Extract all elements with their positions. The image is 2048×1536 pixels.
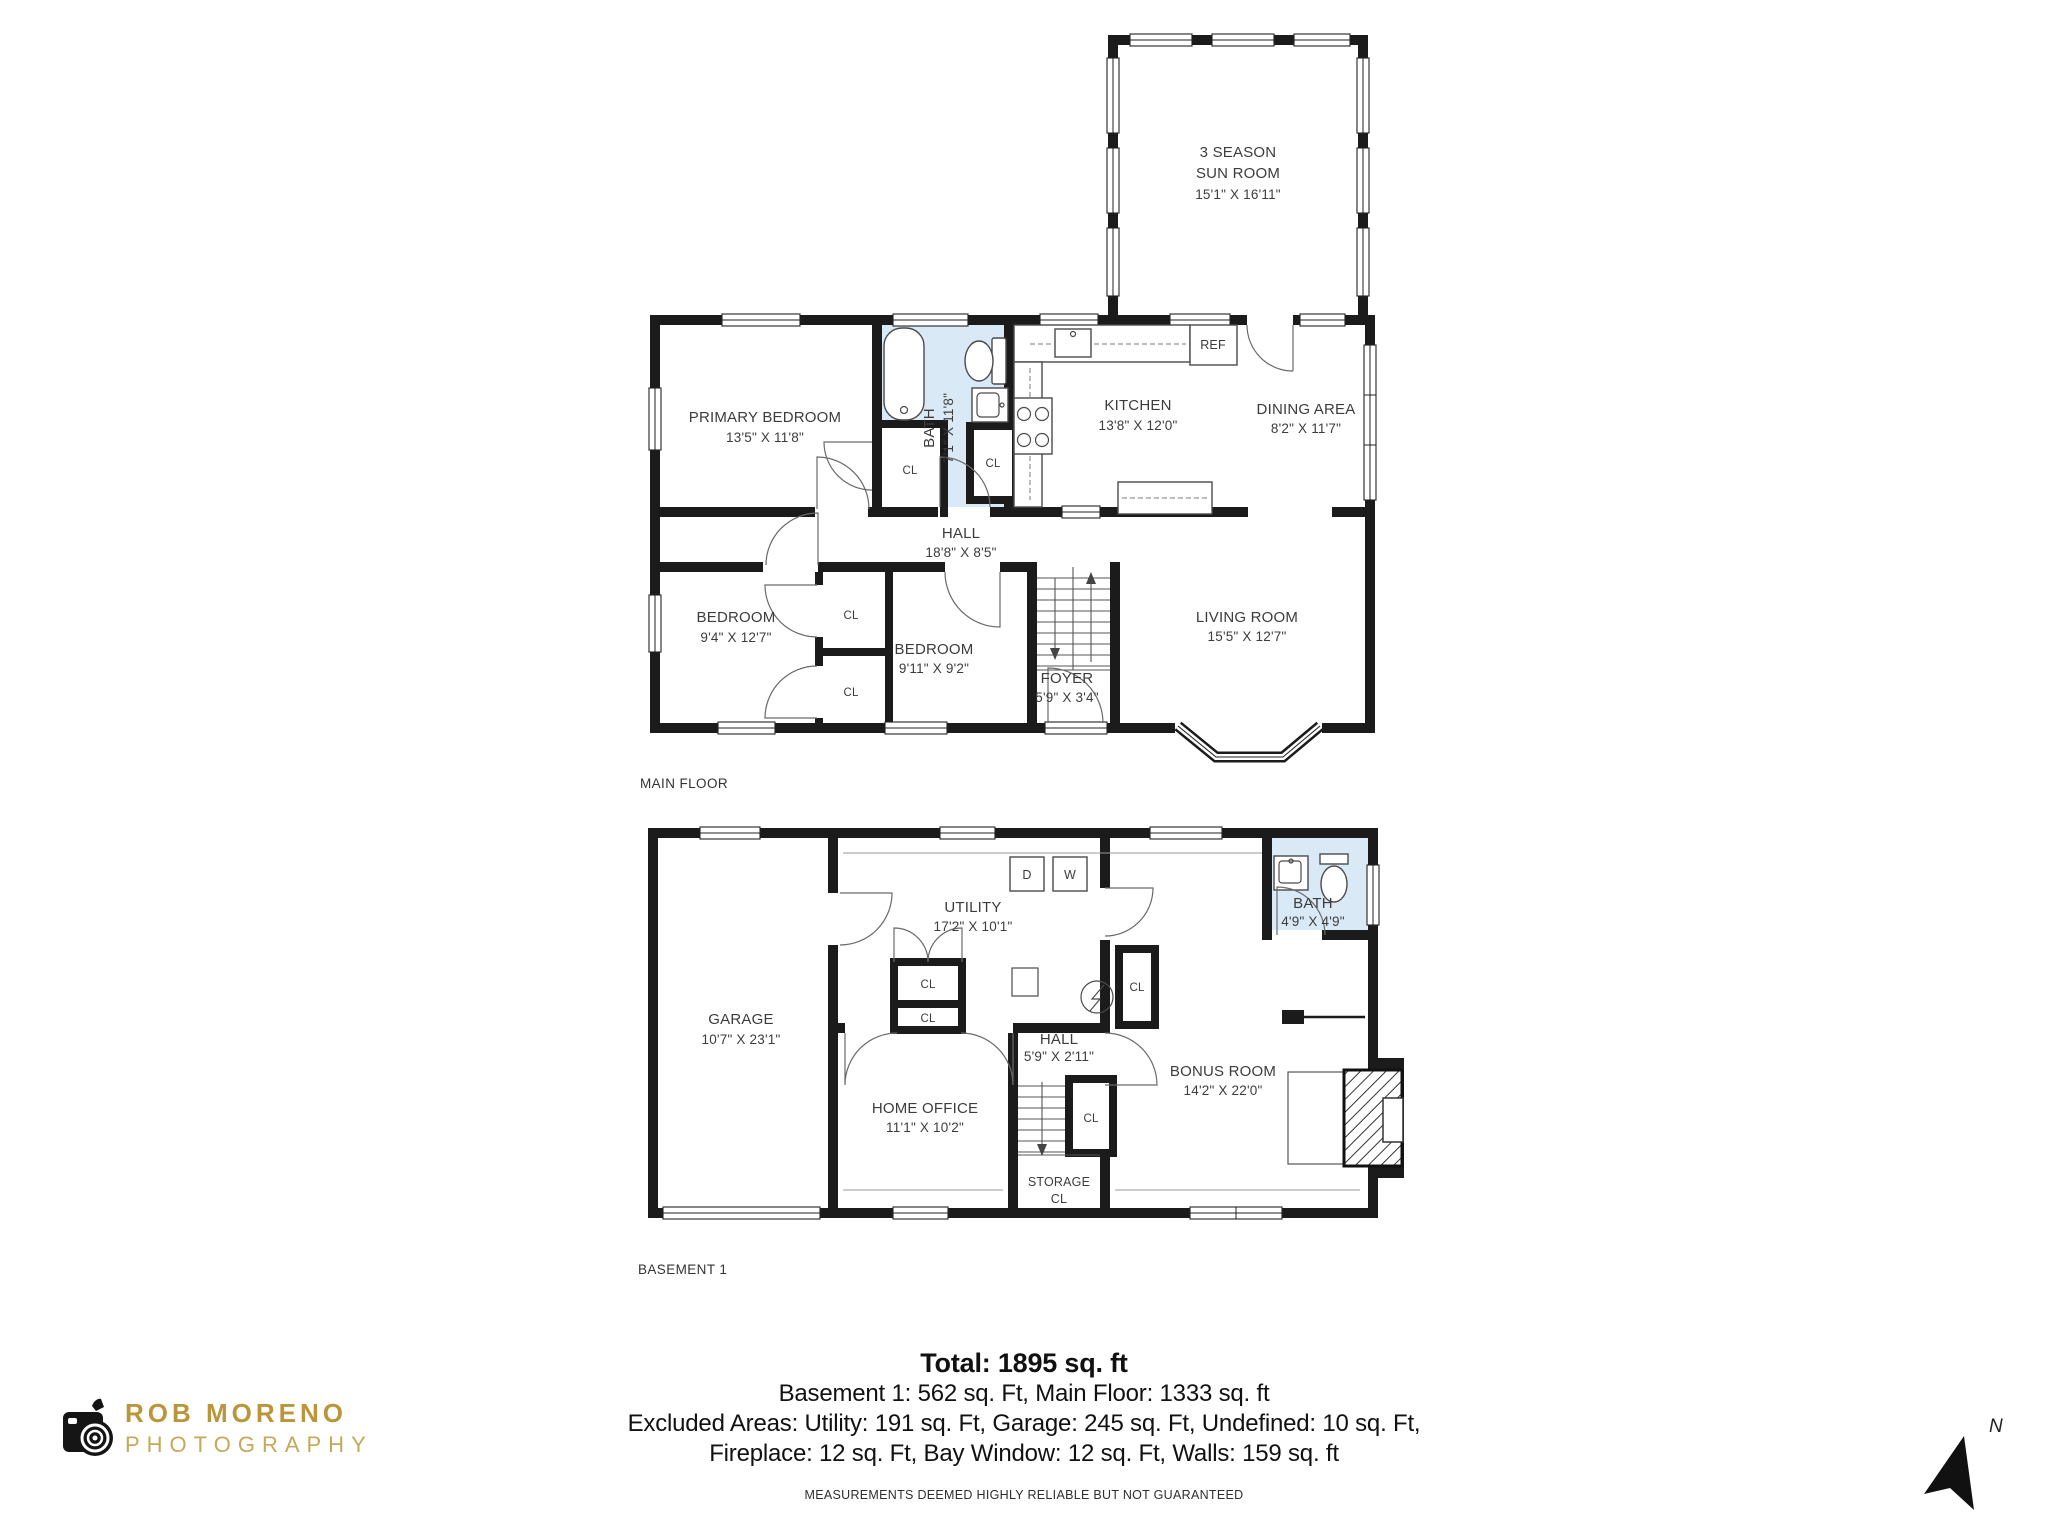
label-bedroom-left: BEDROOM (697, 609, 776, 626)
label-dryer: D (1022, 868, 1031, 882)
sun-room-label-1: 3 SEASON (1200, 144, 1277, 161)
photographer-logo: ROB MORENO PHOTOGRAPHY (63, 1398, 373, 1474)
dims-bedroom-mid: 9'11" X 9'2" (899, 661, 969, 676)
basement-caption: BASEMENT 1 (638, 1262, 727, 1277)
label-utility: UTILITY (944, 899, 1001, 916)
label-closet-stairs: CL (1083, 1113, 1099, 1125)
north-arrow: N (1918, 1402, 2028, 1522)
label-basement-bath: BATH (1293, 895, 1333, 912)
dims-bonus-room: 14'2" X 22'0" (1184, 1083, 1263, 1098)
basement-plan: GARAGE 10'7" X 23'1" UTILITY 17'2" X 10'… (648, 827, 1404, 1219)
total-area: Total: 1895 sq. ft (0, 1348, 2048, 1379)
label-fridge: REF (1200, 338, 1226, 352)
kitchen-sink (1055, 329, 1091, 357)
label-closet-upper: CL (843, 610, 859, 622)
label-kitchen: KITCHEN (1104, 397, 1171, 414)
dims-basement-bath: 4'9" X 4'9" (1281, 914, 1344, 929)
label-bonus-room: BONUS ROOM (1170, 1063, 1276, 1080)
dims-main-bath: 7'1" X 11'8" (941, 393, 956, 463)
dims-foyer: 5'9" X 3'4" (1035, 690, 1098, 705)
toilet-tank (992, 338, 1006, 384)
label-bedroom-mid: BEDROOM (895, 641, 974, 658)
dims-hall: 18'8" X 8'5" (925, 545, 996, 560)
label-dining: DINING AREA (1257, 401, 1356, 418)
label-foyer: FOYER (1041, 670, 1094, 687)
main-floor-plan: PRIMARY BEDROOM 13'5" X 11'8" BATH 7'1" … (649, 313, 1376, 757)
main-floor-caption: MAIN FLOOR (640, 776, 728, 791)
dims-dining: 8'2" X 11'7" (1271, 421, 1341, 436)
label-primary-bedroom: PRIMARY BEDROOM (689, 409, 841, 426)
studio-tagline: PHOTOGRAPHY (125, 1432, 373, 1458)
disclaimer: MEASUREMENTS DEEMED HIGHLY RELIABLE BUT … (0, 1488, 2048, 1502)
dims-kitchen: 13'8" X 12'0" (1099, 418, 1178, 433)
label-storage-2: CL (1051, 1192, 1067, 1206)
sun-room-dims: 15'1" X 16'11" (1195, 187, 1281, 202)
camera-icon (63, 1398, 113, 1474)
label-hall: HALL (942, 525, 980, 542)
label-closet-bath: CL (902, 465, 918, 477)
dims-home-office: 11'1" X 10'2" (886, 1120, 964, 1135)
north-label: N (1989, 1416, 2003, 1437)
label-closet-kitchen: CL (985, 458, 1001, 470)
label-washer: W (1064, 868, 1076, 882)
label-closet-heater: CL (1129, 982, 1145, 994)
basement-toilet-tank (1320, 854, 1348, 864)
toilet-icon (965, 341, 993, 381)
dims-living-room: 15'5" X 12'7" (1208, 629, 1287, 644)
sun-room: 3 SEASON SUN ROOM 15'1" X 16'11" (1107, 34, 1378, 325)
label-main-bath: BATH (921, 408, 938, 448)
north-needle (1924, 1436, 1974, 1510)
label-living-room: LIVING ROOM (1196, 609, 1298, 626)
dims-basement-hall: 5'9" X 2'11" (1024, 1049, 1094, 1064)
label-storage-1: STORAGE (1028, 1175, 1090, 1189)
fireplace (1288, 1058, 1404, 1178)
label-garage: GARAGE (708, 1011, 773, 1028)
dims-garage: 10'7" X 23'1" (702, 1032, 781, 1047)
sun-room-label-2: SUN ROOM (1196, 165, 1280, 182)
label-closet-a: CL (920, 979, 936, 991)
wall-stub (1282, 1010, 1304, 1024)
dims-utility: 17'2" X 10'1" (934, 919, 1013, 934)
hearth (1288, 1072, 1344, 1164)
label-basement-hall: HALL (1040, 1031, 1078, 1048)
dims-bedroom-left: 9'4" X 12'7" (700, 630, 771, 645)
label-closet-lower: CL (843, 687, 859, 699)
floor-plan-canvas: 3 SEASON SUN ROOM 15'1" X 16'11" (0, 0, 2048, 1536)
label-home-office: HOME OFFICE (872, 1100, 978, 1117)
studio-name: ROB MORENO (125, 1398, 373, 1429)
dims-primary-bedroom: 13'5" X 11'8" (726, 430, 804, 445)
label-closet-b: CL (920, 1013, 936, 1025)
